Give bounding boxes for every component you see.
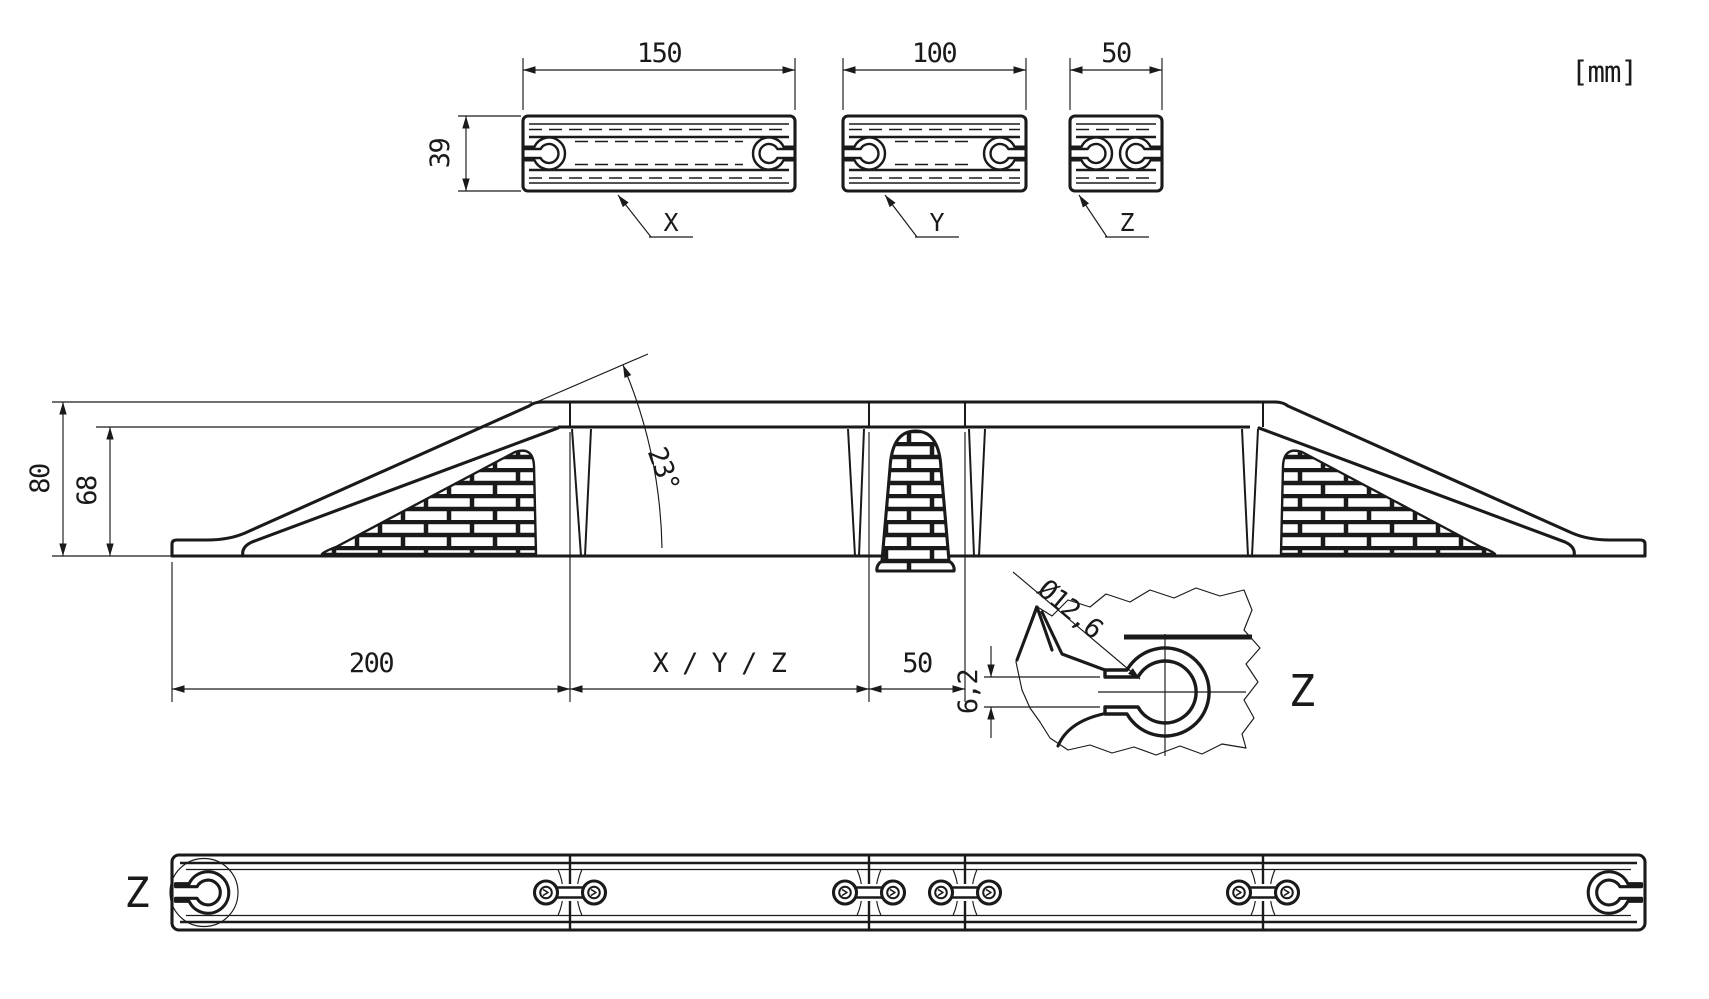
- dim-80-text: 80: [25, 464, 56, 494]
- dim-100-text: 100: [912, 38, 957, 69]
- drawing-canvas: [mm] 150 X: [0, 0, 1709, 994]
- connector: [1228, 881, 1299, 904]
- dim-68-text: 68: [72, 476, 103, 506]
- detail-z-label: Z: [1289, 666, 1316, 717]
- dim-slot-text: 6,2: [953, 670, 984, 714]
- dim-39-text: 39: [425, 139, 456, 169]
- profile-z-label: Z: [1119, 208, 1134, 237]
- dim-150-text: 150: [637, 38, 682, 69]
- connector: [834, 881, 905, 904]
- engineering-drawing-sheet: [mm] 150 X: [0, 0, 1709, 994]
- profile-x-label: X: [663, 208, 678, 237]
- connector: [535, 881, 606, 904]
- plan-detail-marker-label: Z: [124, 868, 149, 917]
- dim-200-text: 200: [349, 648, 394, 679]
- dim-xyz-text: X / Y / Z: [653, 648, 787, 679]
- dim-50-center-text: 50: [902, 648, 932, 679]
- dim-50-profile-text: 50: [1101, 38, 1131, 69]
- connector: [930, 881, 1001, 904]
- units-note: [mm]: [1571, 55, 1637, 89]
- profile-y-label: Y: [929, 208, 944, 237]
